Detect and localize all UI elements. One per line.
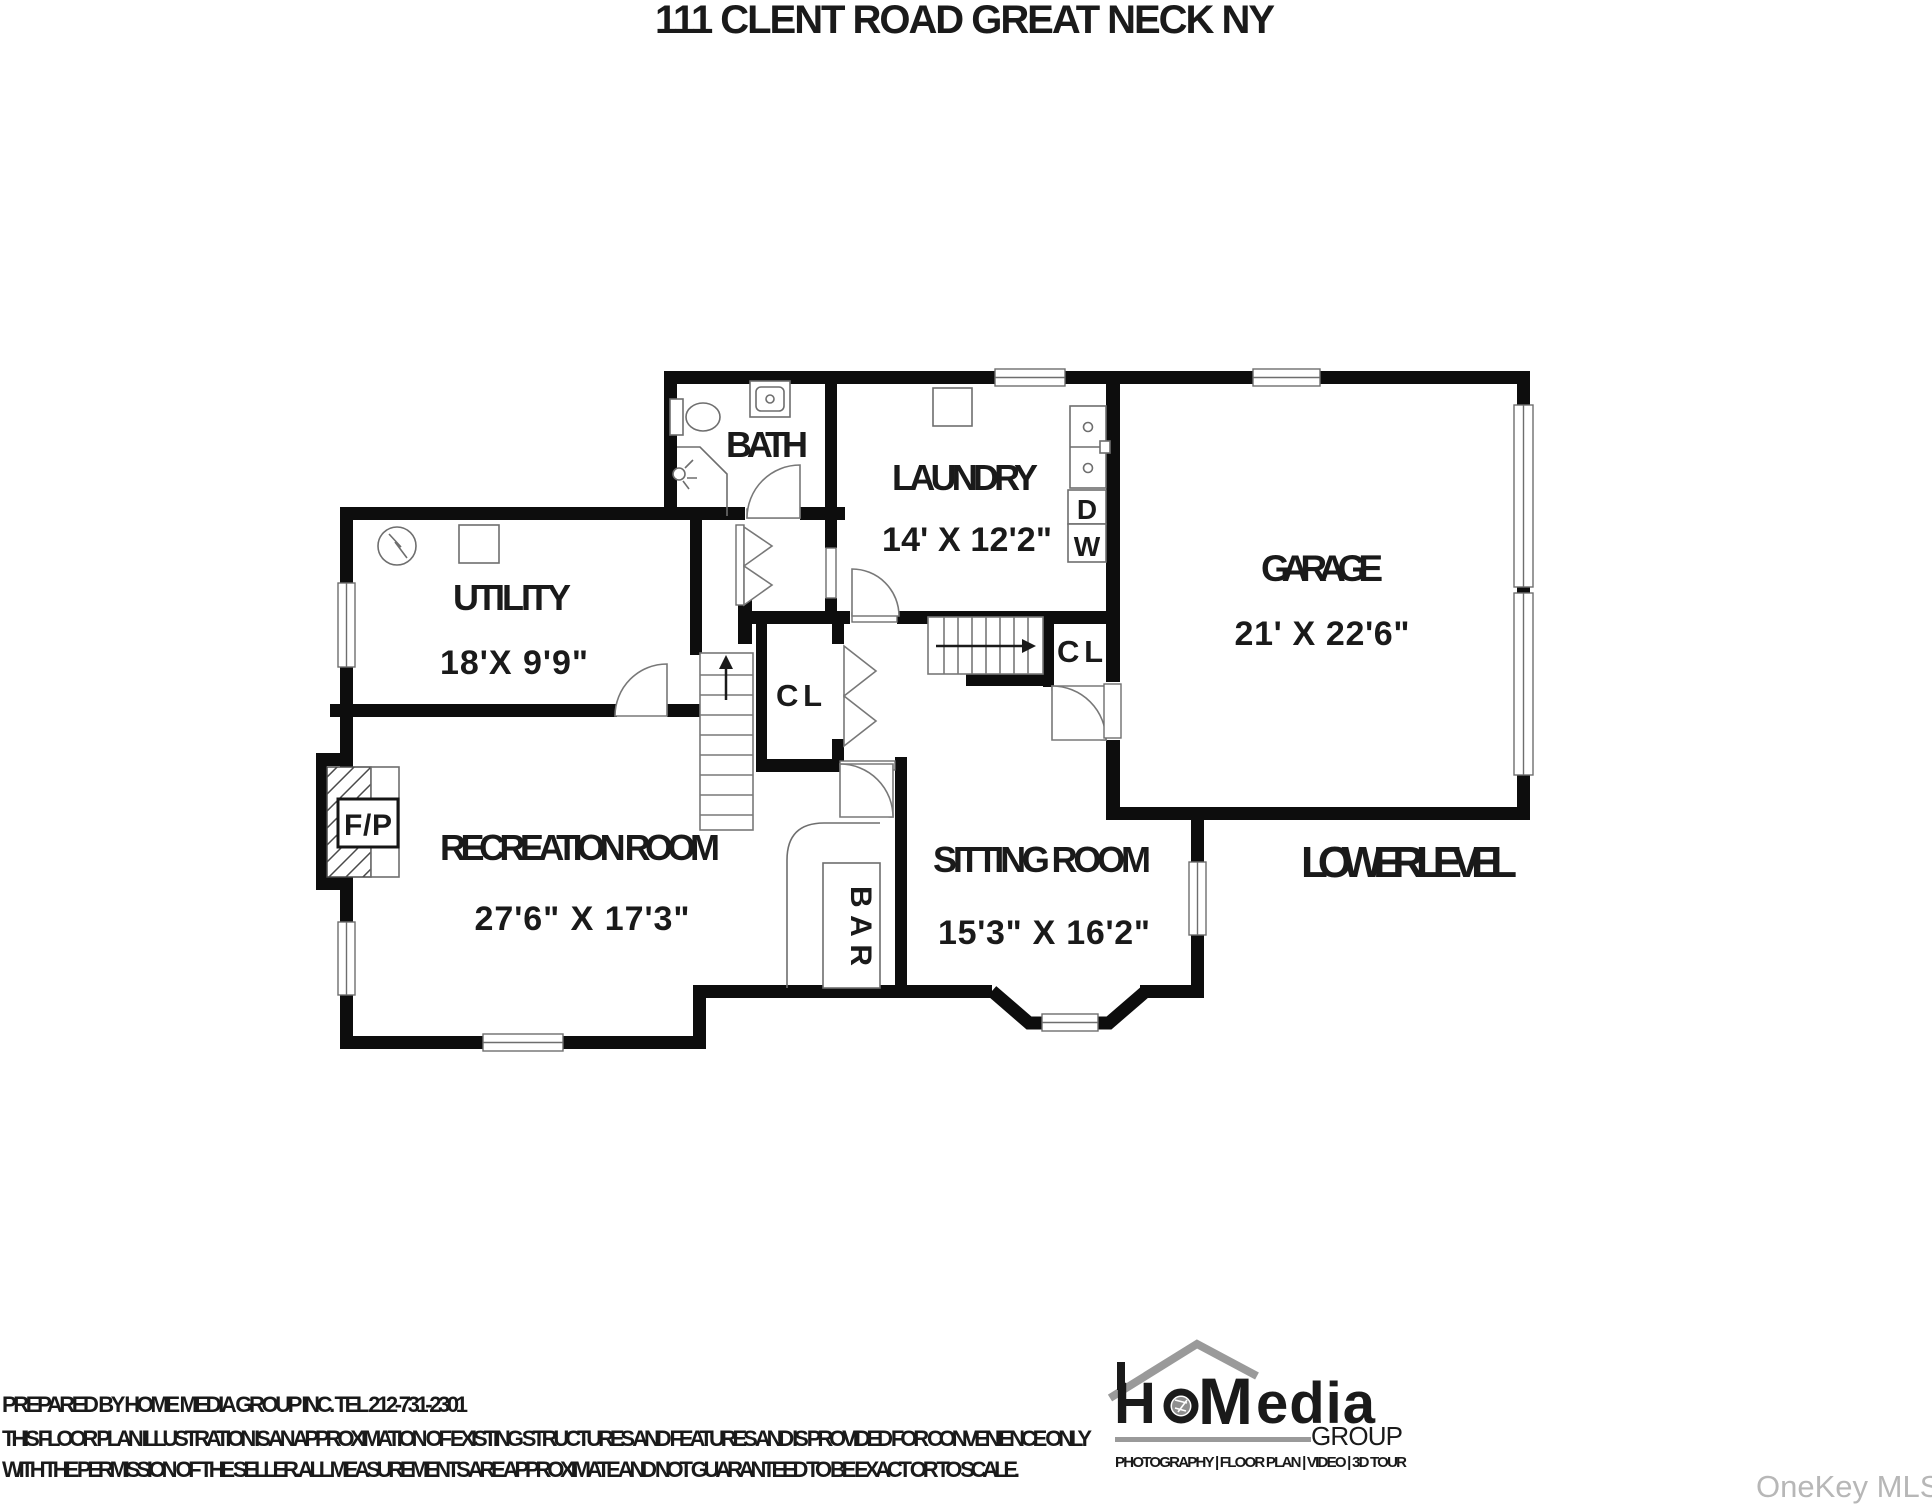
sitting-dims: 15'3" X 16'2" [938,914,1150,952]
laundry-door-arc [852,569,899,616]
footer-line2: THIS FLOOR PLAN ILLUSTRATION IS AN APPRO… [2,1426,1092,1451]
svg-text:D: D [1077,494,1097,525]
svg-text:W: W [1074,531,1101,562]
utility-label: UTILITY [453,577,571,618]
bar-counter: BAR [787,823,880,988]
sink-icon [750,381,790,417]
hall-closet-bifold-icon [736,525,772,605]
garage-hall-door-panel [1104,684,1121,738]
logo-group: GROUP [1311,1421,1407,1451]
window-recreation-left [338,922,355,995]
laundry-chute-icon [933,388,972,426]
hall-closet-label: CL [776,678,822,713]
utility-door-arc [615,664,667,716]
bath-label: BATH [726,424,808,465]
recreation-dims: 27'6" X 17'3" [475,900,690,938]
bath-door-arc [747,465,800,518]
garage-door-opening-2 [1514,593,1533,775]
furnace-icon [459,525,499,563]
mls-watermark: OneKey MLS [1756,1469,1932,1504]
floorplan-page: 111 CLENT ROAD GREAT NECK NY [0,0,1932,1504]
footer-line1: PREPARED BY HOME MEDIA GROUP INC. TEL 21… [2,1392,468,1417]
window-bay-bottom [1042,1014,1098,1031]
water-heater-icon [378,527,416,565]
garage-label: GARAGE [1261,548,1383,589]
room-labels: BATH LAUNDRY 14' X 12'2" GARAGE 21' X 22… [440,424,1517,952]
garage-dims: 21' X 22'6" [1235,615,1410,653]
garage-door-opening-1 [1514,405,1533,587]
laundry-label: LAUNDRY [892,457,1038,498]
washer-box: W [1068,524,1106,562]
footer-line3: WITH THE PERMISSION OF THE SELLER. ALL M… [2,1457,1020,1482]
window-utility-left [338,583,355,667]
garage-closet-label: CL [1057,634,1103,669]
fireplace-label: F/P [344,809,392,842]
floorplan-canvas: 111 CLENT ROAD GREAT NECK NY [0,0,1932,1504]
page-title: 111 CLENT ROAD GREAT NECK NY [655,0,1275,42]
closet-bifold-icon [844,646,876,746]
bar-label: BAR [844,886,877,966]
floor-level-label: LOWER LEVEL [1301,838,1517,887]
logo-underline [1115,1437,1311,1442]
camera-lens-icon [1167,1392,1195,1420]
recreation-label: RECREATION ROOM [440,827,720,868]
logo-text-h: H [1114,1371,1156,1436]
stairs-left [700,653,753,830]
sitting-label: SITTING ROOM [933,839,1151,880]
toilet-icon [670,399,720,435]
shower-icon [673,447,727,516]
utility-fixtures [378,525,499,565]
utility-dims: 18'X 9'9" [440,644,588,682]
logo-text-m: M [1198,1364,1253,1438]
stairs-right [928,617,1043,674]
dryer-box: D [1068,490,1106,525]
laundry-dims: 14' X 12'2" [882,521,1052,559]
fireplace: F/P [327,767,399,877]
hall-laundry-opening [826,548,836,598]
logo-tagline: PHOTOGRAPHY | FLOOR PLAN | VIDEO | 3D TO… [1115,1454,1407,1471]
footer-disclaimer: PREPARED BY HOME MEDIA GROUP INC. TEL 21… [2,1392,1092,1482]
window-garage-top [1253,369,1320,386]
window-sitting-right [1189,862,1206,935]
window-recreation-bottom [483,1034,563,1051]
homedia-logo: H M edia GROUP PHOTOGRAPHY | FLOOR PLAN … [1110,1344,1407,1471]
window-laundry-top [995,369,1065,386]
laundry-tubs-icon [1070,406,1110,488]
